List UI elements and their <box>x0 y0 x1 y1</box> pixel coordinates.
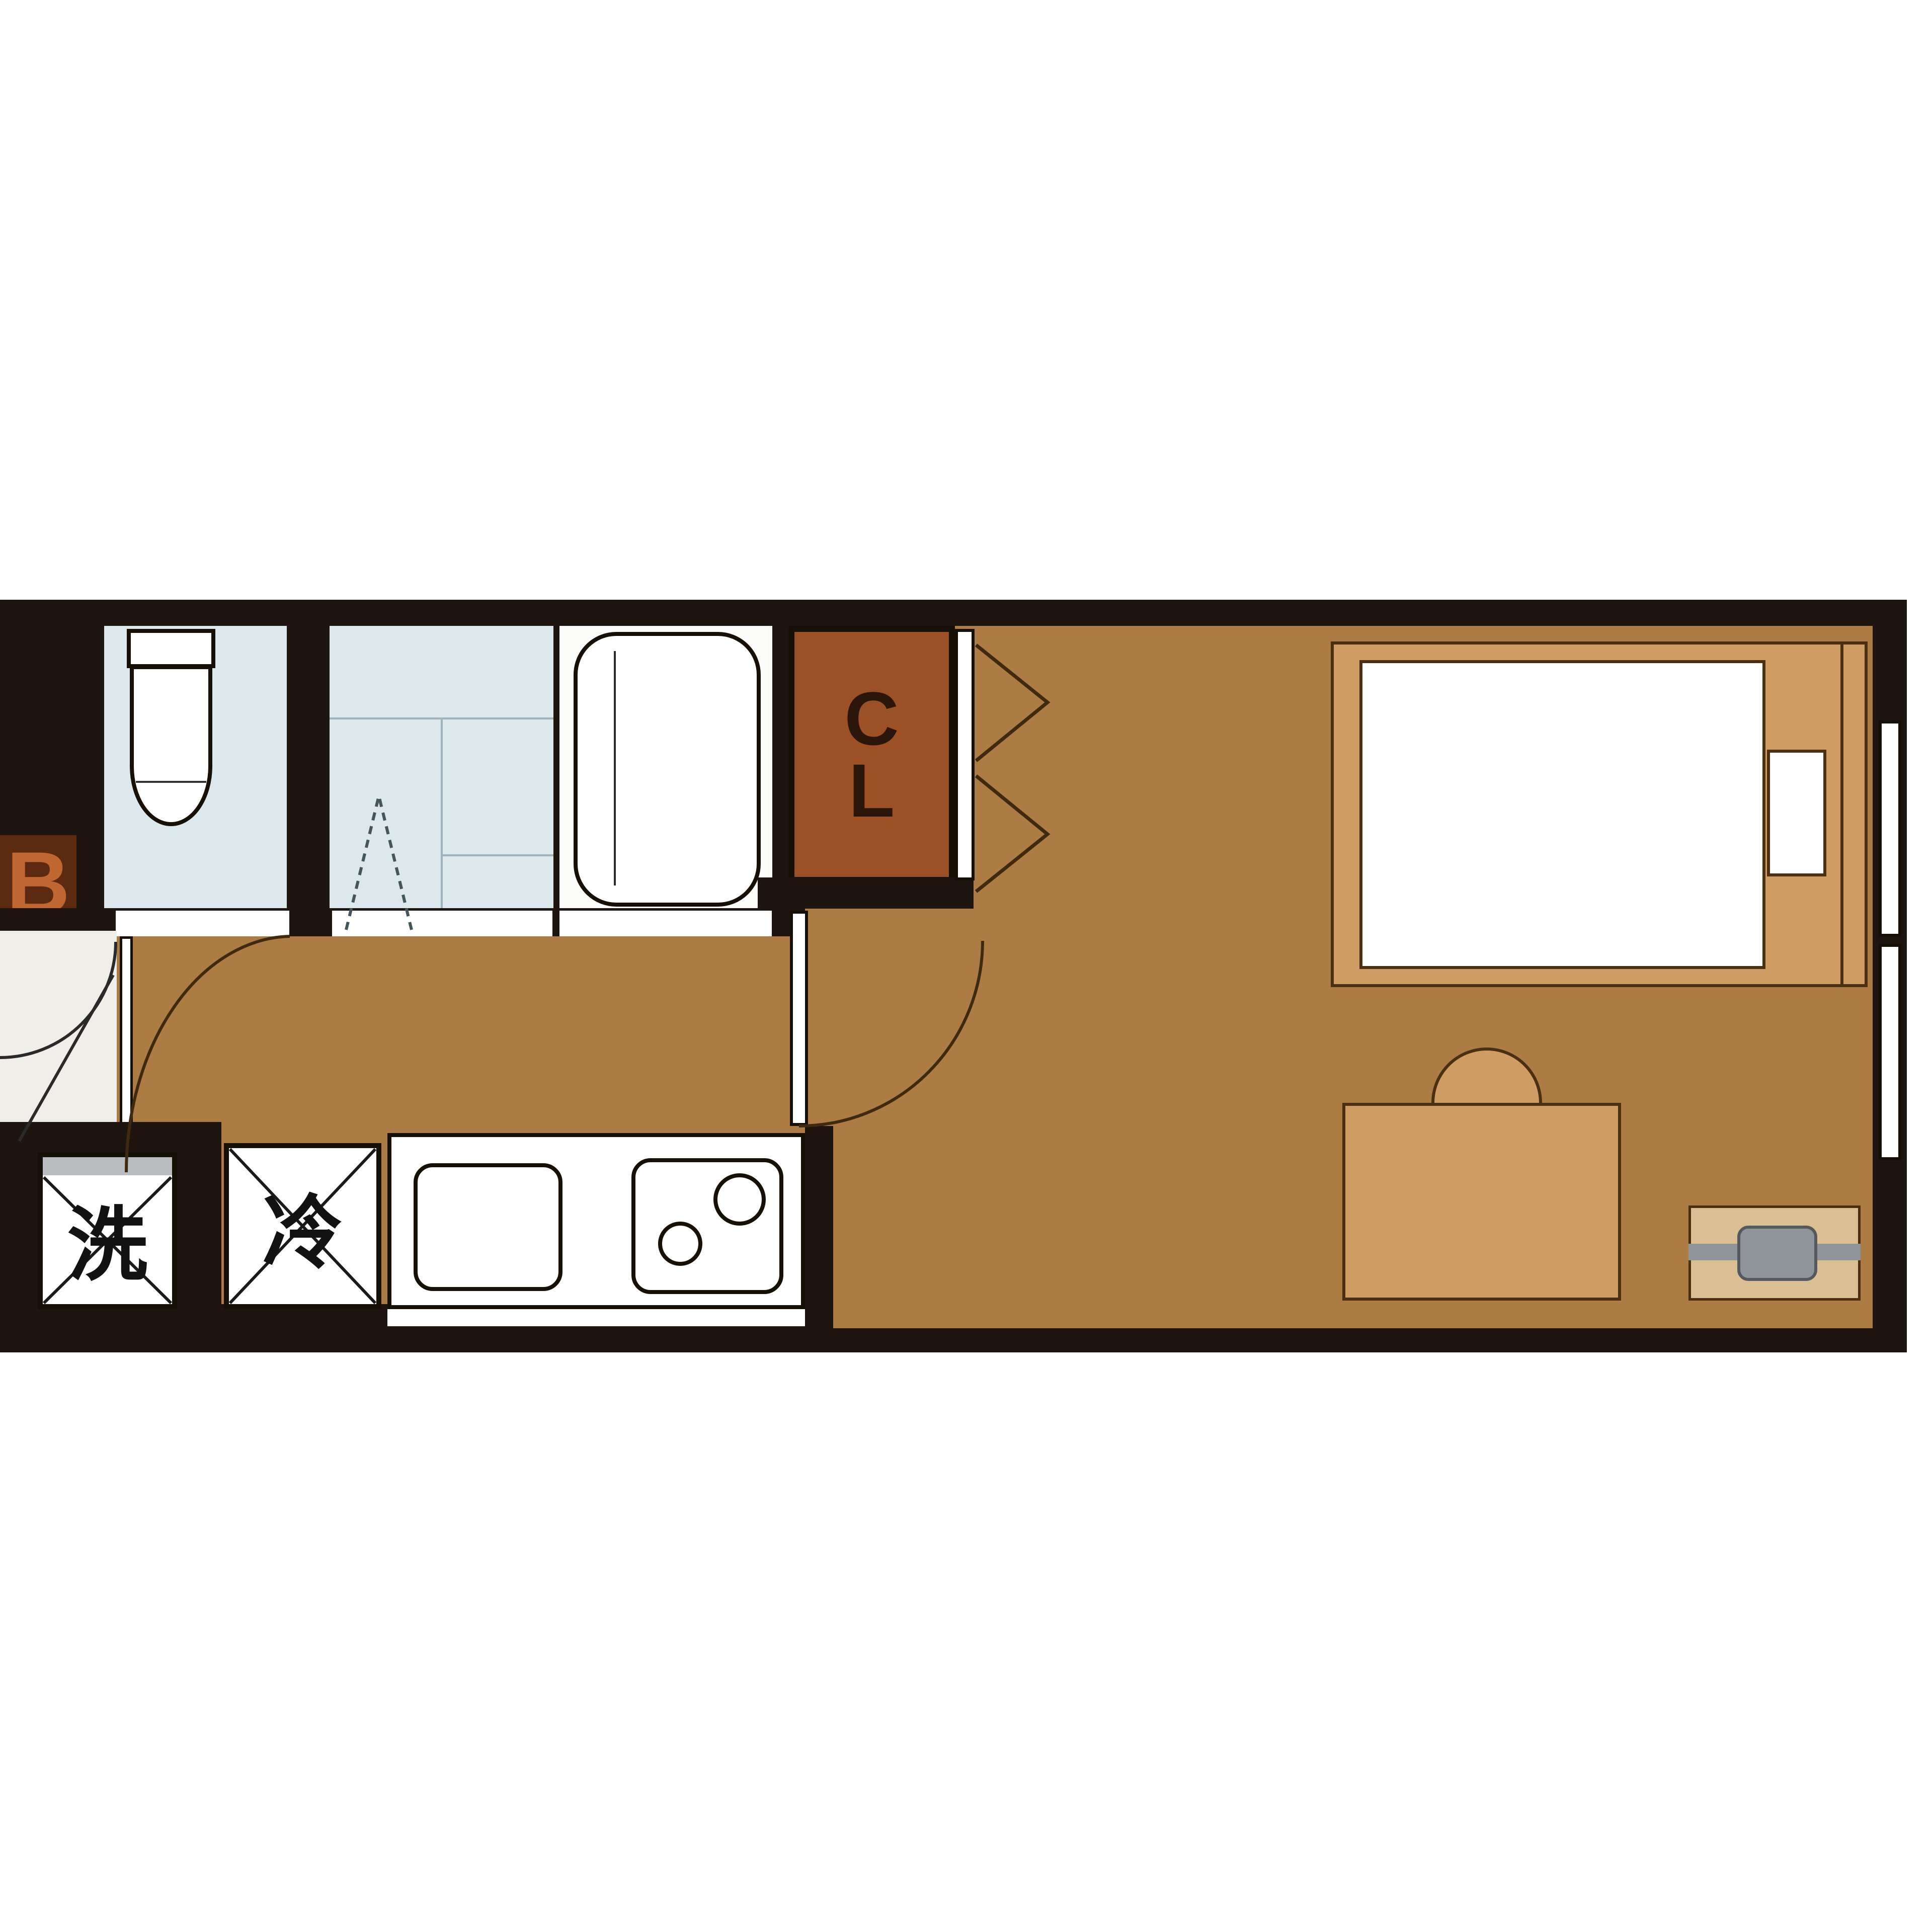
bathtub-rim-line <box>614 651 616 886</box>
window-icon-lower <box>1879 944 1901 1160</box>
bath-doorway-threshold <box>559 911 772 936</box>
sink-icon <box>414 1163 562 1291</box>
bathtub-icon <box>574 632 761 907</box>
wall-below-closet <box>758 877 974 909</box>
tv-icon <box>1737 1226 1817 1281</box>
left-wall-block-2 <box>76 835 104 908</box>
bed-headboard-line <box>1840 643 1843 986</box>
refrigerator-icon: 冷 <box>224 1143 381 1309</box>
washer-label: 洗 <box>67 1180 147 1297</box>
window-icon-upper <box>1879 720 1901 937</box>
washer-label-wrap: 洗 <box>43 1172 172 1304</box>
closet-label-l: L <box>844 755 899 827</box>
shower-floor-line-h2 <box>441 854 553 856</box>
fridge-label-wrap: 冷 <box>229 1148 376 1304</box>
wall-toilet-shower <box>287 626 330 908</box>
bed-mattress <box>1359 660 1765 969</box>
toilet-bowl-icon <box>130 665 212 826</box>
bed-pillow <box>1767 750 1826 876</box>
desk-icon <box>1342 1103 1621 1301</box>
toilet-seat-line <box>136 781 206 783</box>
shower-floor-line-v <box>441 717 443 908</box>
floorplan: B C L <box>0 0 1932 1932</box>
toilet-tank-icon <box>127 629 215 668</box>
closet: C L <box>788 626 955 883</box>
burner-icon-2 <box>713 1173 766 1226</box>
wall-shower-bath <box>553 626 559 908</box>
wall-kitchen-mainroom <box>805 1126 833 1328</box>
washing-machine-icon: 洗 <box>38 1152 177 1309</box>
burner-icon-1 <box>658 1222 702 1266</box>
stove-icon <box>631 1158 783 1294</box>
kitchen-counter-lower-strip <box>387 1309 805 1326</box>
bottom-wall-right <box>805 1328 1907 1352</box>
mainroom-door-leaf <box>790 911 808 1126</box>
shower-doorway-threshold <box>332 911 552 936</box>
top-wall <box>0 600 1907 626</box>
genkan-area <box>0 931 117 1150</box>
toilet-doorway-threshold <box>116 911 289 936</box>
fridge-label: 冷 <box>262 1168 343 1284</box>
left-wall-block <box>0 626 104 835</box>
closet-label-c: C <box>844 683 899 755</box>
closet-door <box>955 629 975 880</box>
